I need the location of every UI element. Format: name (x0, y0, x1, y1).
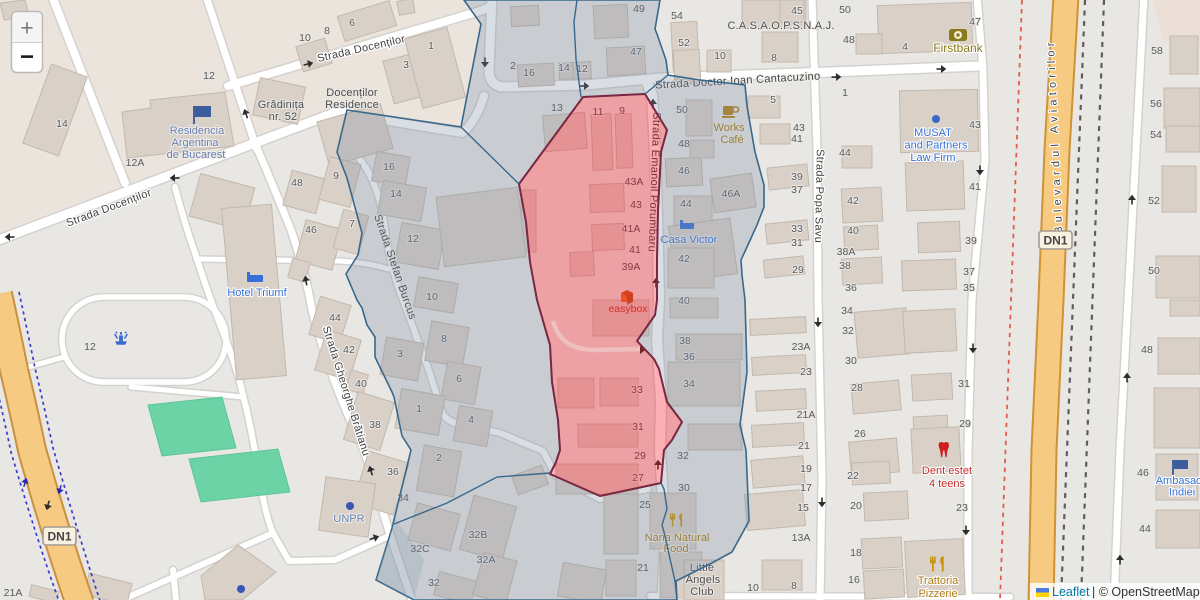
svg-text:26: 26 (854, 428, 866, 440)
svg-text:Hotel Triumf: Hotel Triumf (227, 287, 287, 299)
svg-text:8: 8 (771, 52, 777, 64)
svg-text:12A: 12A (126, 157, 145, 169)
svg-text:48: 48 (291, 177, 303, 189)
svg-text:23: 23 (956, 502, 968, 514)
svg-text:44: 44 (1139, 523, 1151, 535)
svg-text:50: 50 (839, 4, 851, 16)
svg-text:10: 10 (299, 32, 311, 44)
svg-text:56: 56 (1150, 98, 1162, 110)
svg-text:48: 48 (1141, 344, 1153, 356)
svg-text:Dent estet4 teens: Dent estet4 teens (922, 465, 972, 490)
svg-text:29: 29 (792, 264, 804, 276)
svg-text:20: 20 (850, 500, 862, 512)
svg-text:6: 6 (349, 17, 355, 29)
svg-text:21: 21 (798, 440, 810, 452)
svg-text:37: 37 (963, 266, 975, 278)
svg-text:UNPR: UNPR (333, 513, 364, 525)
svg-text:23: 23 (800, 366, 812, 378)
svg-text:12: 12 (203, 70, 215, 82)
svg-text:15: 15 (797, 502, 809, 514)
svg-text:23A: 23A (792, 341, 811, 353)
svg-text:3: 3 (403, 59, 409, 71)
svg-text:38: 38 (369, 419, 381, 431)
svg-text:42: 42 (343, 344, 355, 356)
svg-text:−: − (20, 44, 34, 71)
svg-text:34: 34 (841, 305, 853, 317)
svg-text:16: 16 (848, 574, 860, 586)
svg-text:7: 7 (349, 218, 355, 230)
svg-text:33: 33 (791, 223, 803, 235)
svg-text:39: 39 (791, 171, 803, 183)
svg-text:DN1: DN1 (1043, 234, 1067, 248)
svg-text:| © OpenStreetMap: | © OpenStreetMap (1092, 585, 1200, 599)
svg-text:36: 36 (845, 282, 857, 294)
svg-text:46: 46 (1137, 467, 1149, 479)
svg-text:21A: 21A (4, 587, 23, 599)
svg-text:41: 41 (969, 181, 981, 193)
svg-text:47: 47 (969, 16, 981, 28)
svg-text:40: 40 (847, 225, 859, 237)
svg-text:39: 39 (965, 235, 977, 247)
svg-text:35: 35 (963, 282, 975, 294)
svg-text:38A: 38A (837, 246, 856, 258)
svg-text:38: 38 (839, 260, 851, 272)
svg-text:5: 5 (770, 94, 776, 106)
svg-text:DN1: DN1 (47, 530, 71, 544)
svg-text:54: 54 (671, 10, 683, 22)
svg-text:8: 8 (324, 25, 330, 37)
svg-text:44: 44 (329, 312, 341, 324)
svg-text:1: 1 (842, 87, 848, 99)
svg-text:18: 18 (850, 547, 862, 559)
svg-text:41: 41 (791, 133, 803, 145)
svg-text:44: 44 (839, 147, 851, 159)
svg-text:37: 37 (791, 184, 803, 196)
svg-text:14: 14 (56, 118, 68, 130)
svg-text:C.A.S.A.O.P.S.N.A.J.: C.A.S.A.O.P.S.N.A.J. (727, 20, 834, 32)
svg-text:4: 4 (902, 41, 908, 53)
svg-text:TrattoriaPizzerie: TrattoriaPizzerie (918, 575, 959, 600)
svg-text:+: + (20, 15, 33, 41)
svg-text:Strada Popa Savu: Strada Popa Savu (812, 149, 826, 243)
svg-text:54: 54 (1150, 129, 1162, 141)
svg-text:31: 31 (958, 378, 970, 390)
svg-text:10: 10 (714, 50, 726, 62)
svg-text:10: 10 (747, 582, 759, 594)
svg-text:Firstbank: Firstbank (933, 41, 983, 55)
svg-text:28: 28 (851, 382, 863, 394)
svg-text:1: 1 (428, 40, 434, 52)
svg-text:29: 29 (959, 418, 971, 430)
svg-text:48: 48 (843, 34, 855, 46)
svg-text:46: 46 (305, 224, 317, 236)
svg-text:12: 12 (84, 341, 96, 353)
svg-text:40: 40 (355, 378, 367, 390)
svg-text:52: 52 (678, 37, 690, 49)
svg-text:43: 43 (969, 119, 981, 131)
svg-text:9: 9 (333, 170, 339, 182)
svg-text:17: 17 (800, 482, 812, 494)
svg-text:50: 50 (1148, 265, 1160, 277)
svg-text:19: 19 (800, 463, 812, 475)
svg-text:36: 36 (387, 466, 399, 478)
svg-text:DocențilorResidence: DocențilorResidence (325, 87, 379, 111)
svg-text:30: 30 (845, 355, 857, 367)
svg-text:22: 22 (847, 470, 859, 482)
svg-text:8: 8 (791, 580, 797, 592)
svg-text:42: 42 (847, 195, 859, 207)
svg-text:13A: 13A (792, 532, 811, 544)
svg-text:32: 32 (842, 325, 854, 337)
svg-text:21A: 21A (797, 409, 816, 421)
svg-text:58: 58 (1151, 45, 1163, 57)
svg-text:52: 52 (1148, 195, 1160, 207)
svg-text:31: 31 (791, 237, 803, 249)
svg-text:45: 45 (791, 5, 803, 17)
svg-text:ResidenciaArgentinade Bucarest: ResidenciaArgentinade Bucarest (167, 125, 226, 161)
svg-text:Leaflet: Leaflet (1052, 585, 1090, 599)
